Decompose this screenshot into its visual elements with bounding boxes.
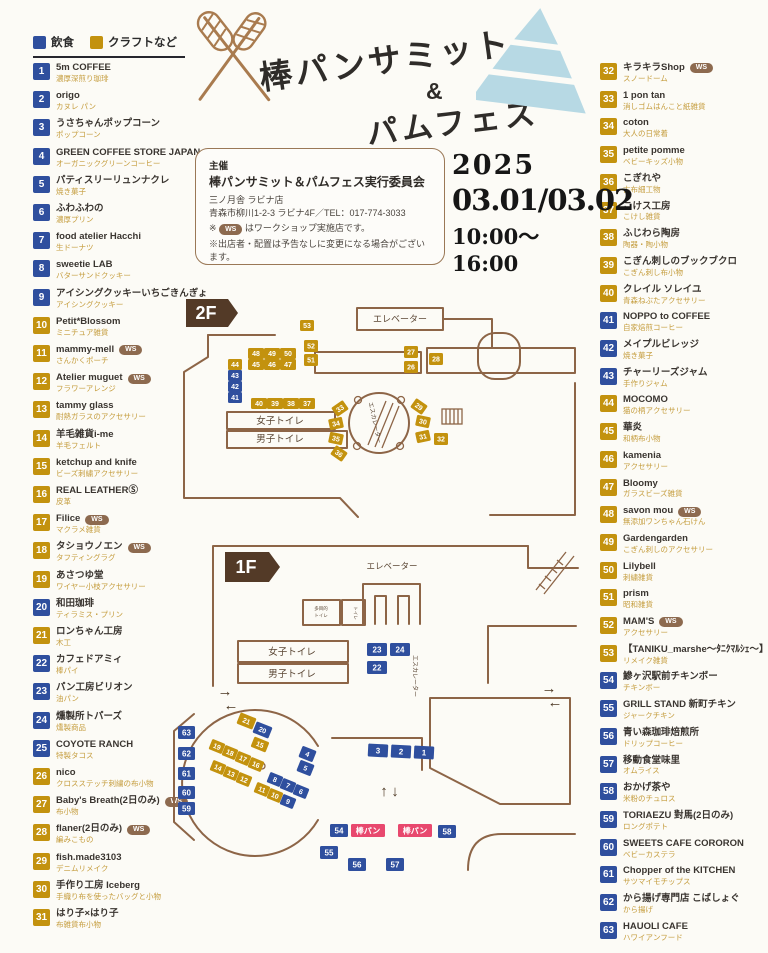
vendor-name: チャーリーズジャム bbox=[623, 368, 707, 379]
vendor-name: 手作り工房 Iceberg bbox=[56, 881, 140, 892]
vendor-name: Baby's Breath(2日のみ) bbox=[56, 796, 160, 807]
vendor-text: あさつゆ堂ワイヤー小枝アクセサリー bbox=[56, 571, 146, 592]
vendor-text: HAUOLI CAFEハワイアンフード bbox=[623, 922, 688, 943]
vendor-item: 52MAM'SWSアクセサリー bbox=[600, 617, 683, 638]
map-booth: 39 bbox=[267, 398, 283, 409]
vendor-text: GREEN COFFEE STORE JAPANオーガニックグリーンコーヒー bbox=[56, 148, 200, 169]
svg-text:51: 51 bbox=[307, 358, 315, 365]
svg-text:61: 61 bbox=[182, 769, 191, 778]
vendor-item: 14羊毛雑貨i-me羊毛フェルト bbox=[33, 430, 114, 451]
vendor-item: 10Petit*Blossomミニチュア雑貨 bbox=[33, 317, 120, 338]
vendor-category: 布雑貨布小物 bbox=[56, 921, 119, 930]
ws-badge: WS bbox=[219, 224, 242, 235]
vendor-number: 9 bbox=[33, 289, 50, 306]
organizer-name: 棒パンサミット＆パムフェス実行委員会 bbox=[209, 173, 431, 190]
vendor-text: 和田珈琲ティラミス・プリン bbox=[56, 599, 123, 620]
vendor-number: 30 bbox=[33, 881, 50, 898]
map-booth: 26 bbox=[404, 361, 418, 373]
vendor-name: パティスリーリュンナクレ bbox=[56, 176, 169, 187]
vendor-text: SWEETS CAFE CORORONベビーカステラ bbox=[623, 839, 744, 860]
vendor-text: ふじわら陶房陶器・陶小物 bbox=[623, 229, 680, 250]
vendor-name: 燻製所トパーズ bbox=[56, 712, 122, 723]
vendor-text: こぎん刺しのブックブクロこぎん刺し布小物 bbox=[623, 257, 737, 278]
ws-badge: WS bbox=[690, 63, 713, 73]
vendor-number: 33 bbox=[600, 91, 617, 108]
svg-text:45: 45 bbox=[252, 362, 260, 369]
map-booth: 56 bbox=[348, 858, 366, 871]
map-booth: 57 bbox=[386, 858, 404, 871]
vendor-category: ポップコーン bbox=[56, 131, 160, 140]
vendor-number: 7 bbox=[33, 232, 50, 249]
vendor-number: 56 bbox=[600, 728, 617, 745]
vendor-name: savon mou bbox=[623, 506, 673, 517]
vendor-text: Petit*Blossomミニチュア雑貨 bbox=[56, 317, 120, 338]
svg-text:棒パン: 棒パン bbox=[403, 825, 427, 835]
map-label: トイレ bbox=[314, 613, 328, 618]
vendor-item: 38ふじわら陶房陶器・陶小物 bbox=[600, 229, 680, 250]
ws-badge: WS bbox=[128, 543, 151, 553]
vendor-name: あさつゆ堂 bbox=[56, 571, 104, 582]
vendor-name: クレイル ソレイユ bbox=[623, 285, 701, 296]
map-booth: 53 bbox=[300, 320, 314, 331]
map-booth: 54 bbox=[330, 824, 348, 837]
vendor-name: TORIAEZU 對馬(2日のみ) bbox=[623, 811, 733, 822]
vendor-item: 5パティスリーリュンナクレ焼き菓子 bbox=[33, 176, 169, 197]
vendor-number: 54 bbox=[600, 672, 617, 689]
vendor-item: 32キラキラShopWSスノードーム bbox=[600, 63, 713, 84]
vendor-name: 1 pon tan bbox=[623, 91, 665, 102]
vendor-item: 16REAL LEATHERⓈ皮革 bbox=[33, 486, 138, 507]
vendor-number: 3 bbox=[33, 119, 50, 136]
vendor-text: 1 pon tan消しゴムはんこと紙雑貨 bbox=[623, 91, 706, 112]
vendor-text: 青い森珈琲焙煎所ドリップコーヒー bbox=[623, 728, 699, 749]
ws-badge: WS bbox=[127, 825, 150, 835]
organizer-heading: 主催 bbox=[209, 158, 431, 172]
vendor-number: 61 bbox=[600, 866, 617, 883]
direction-arrow: ← bbox=[224, 697, 239, 714]
vendor-category: ミニチュア雑貨 bbox=[56, 329, 120, 338]
stairs-icon-2f bbox=[442, 409, 462, 424]
vendor-number: 60 bbox=[600, 839, 617, 856]
vendor-name: タショウノエン bbox=[56, 542, 123, 553]
svg-text:43: 43 bbox=[231, 373, 239, 380]
vendor-number: 25 bbox=[33, 740, 50, 757]
map-booth: 27 bbox=[404, 346, 418, 358]
map-label: トイレ bbox=[353, 606, 358, 620]
vendor-item: 4GREEN COFFEE STORE JAPANオーガニックグリーンコーヒー bbox=[33, 148, 200, 169]
vendor-number: 24 bbox=[33, 712, 50, 729]
vendor-number: 51 bbox=[600, 589, 617, 606]
vendor-number: 12 bbox=[33, 373, 50, 390]
vendor-number: 11 bbox=[33, 345, 50, 362]
vendor-category: アクセサリー bbox=[623, 463, 668, 472]
vendor-text: 移動食堂味里オムライス bbox=[623, 756, 680, 777]
vendor-text: パン工房ビリオン油パン bbox=[56, 683, 132, 704]
map-booth: 55 bbox=[320, 846, 338, 859]
vendor-number: 62 bbox=[600, 894, 617, 911]
vendor-item: 63HAUOLI CAFEハワイアンフード bbox=[600, 922, 688, 943]
labels-1f: エレベーター多目的トイレトイレ女子トイレ男子トイレエスカレーター→←→←↑↓ bbox=[218, 561, 563, 800]
vendor-item: 8sweetie LABバターサンドクッキー bbox=[33, 260, 131, 281]
vendor-name: こぎん刺しのブックブクロ bbox=[623, 257, 737, 268]
vendor-category: タフティングラグ bbox=[56, 554, 151, 563]
vendor-name: Gardengarden bbox=[623, 534, 688, 545]
map-booth: 59 bbox=[178, 802, 195, 815]
vendor-text: prism昭和雑貨 bbox=[623, 589, 653, 610]
map-label: 女子トイレ bbox=[268, 646, 316, 658]
vendor-number: 19 bbox=[33, 571, 50, 588]
vendor-item: 49Gardengardenこぎん刺しのアクセサリー bbox=[600, 534, 713, 555]
vendor-item: 17FiliceWSマクラメ雑貨 bbox=[33, 514, 109, 535]
vendor-item: 35petite pommeベビーキッズ小物 bbox=[600, 146, 685, 167]
floor-tag-2f: 2F bbox=[186, 299, 238, 327]
vendor-category: 編みこもの bbox=[56, 836, 150, 845]
vendor-text: REAL LEATHERⓈ皮革 bbox=[56, 486, 138, 507]
map-booth: 1 bbox=[414, 745, 435, 759]
vendor-item: 7food atelier Hacchi生ドーナツ bbox=[33, 232, 141, 253]
map-booth: 42 bbox=[228, 381, 242, 392]
vendor-number: 18 bbox=[33, 542, 50, 559]
vendor-text: fish.made3103デニムリメイク bbox=[56, 853, 121, 874]
change-note: ※出店者・配置は予告なしに変更になる場合がございます。 bbox=[209, 238, 431, 262]
map-label: 男子トイレ bbox=[256, 434, 304, 445]
map-booth: 15 bbox=[251, 736, 270, 752]
vendor-name: fish.made3103 bbox=[56, 853, 121, 864]
vendor-category: マクラメ雑貨 bbox=[56, 526, 109, 535]
pyramid-logo bbox=[476, 2, 596, 117]
vendor-category: 羊毛フェルト bbox=[56, 442, 114, 451]
vendor-text: パティスリーリュンナクレ焼き菓子 bbox=[56, 176, 169, 197]
vendor-category: サツマイモチップス bbox=[623, 878, 735, 887]
vendor-category: ベビーキッズ小物 bbox=[623, 158, 685, 167]
vendor-category: 生ドーナツ bbox=[56, 244, 141, 253]
legend-item: 飲食 bbox=[33, 34, 74, 50]
vendor-text: origoカヌレ パン bbox=[56, 91, 96, 112]
vendor-text: TORIAEZU 對馬(2日のみ)ロングポテト bbox=[623, 811, 733, 832]
vendor-category: ワイヤー小枝アクセサリー bbox=[56, 583, 146, 592]
map-booth: 29 bbox=[410, 398, 428, 415]
vendor-number: 42 bbox=[600, 340, 617, 357]
map-label: エレベーター bbox=[373, 314, 427, 324]
vendor-category: こぎん刺しのアクセサリー bbox=[623, 546, 713, 555]
vendor-number: 6 bbox=[33, 204, 50, 221]
svg-text:22: 22 bbox=[373, 663, 382, 672]
map-booth: 31 bbox=[415, 430, 431, 444]
vendor-category: 焼き菓子 bbox=[623, 352, 699, 361]
ws-badge: WS bbox=[119, 345, 142, 355]
vendor-text: 手作り工房 Iceberg手織り布を使ったバッグと小物 bbox=[56, 881, 161, 902]
vendor-category: デニムリメイク bbox=[56, 865, 121, 874]
map-booth: 5 bbox=[296, 760, 314, 777]
vendor-item: 48savon mouWS無添加ワンちゃん石けん bbox=[600, 506, 706, 527]
map-booth: 22 bbox=[367, 661, 387, 674]
vendor-category: バターサンドクッキー bbox=[56, 272, 131, 281]
vendor-number: 15 bbox=[33, 458, 50, 475]
map-booth: 44 bbox=[228, 359, 242, 370]
map-booth: 3 bbox=[368, 743, 389, 757]
vendor-category: さんかくポーチ bbox=[56, 357, 142, 366]
vendor-number: 21 bbox=[33, 627, 50, 644]
vendor-number: 14 bbox=[33, 430, 50, 447]
vendor-number: 55 bbox=[600, 700, 617, 717]
vendor-category: 米粉のチュロス bbox=[623, 795, 676, 804]
vendor-text: うさちゃんポップコーンポップコーン bbox=[56, 119, 160, 140]
vendor-name: GRILL STAND 新町チキン bbox=[623, 700, 736, 711]
vendor-category: 昭和雑貨 bbox=[623, 601, 653, 610]
map-booth: 24 bbox=[390, 643, 410, 656]
vendor-number: 46 bbox=[600, 451, 617, 468]
title-block: 棒パンサミット & パムフェス bbox=[188, 0, 590, 145]
legend-swatch-craft bbox=[90, 36, 103, 49]
vendor-item: 57移動食堂味里オムライス bbox=[600, 756, 680, 777]
map-booth: 50 bbox=[280, 348, 296, 359]
map-booth: 28 bbox=[429, 353, 443, 365]
vendor-number: 49 bbox=[600, 534, 617, 551]
vendor-category: クロスステッチ刺繍の布小物 bbox=[56, 780, 154, 789]
vendor-item: 30手作り工房 Iceberg手織り布を使ったバッグと小物 bbox=[33, 881, 161, 902]
vendor-category: 猫の柄アクセサリー bbox=[623, 407, 691, 416]
vendor-item: 42メイプルビレッジ焼き菓子 bbox=[600, 340, 699, 361]
map-booth: 46 bbox=[264, 359, 280, 370]
vendor-item: 51prism昭和雑貨 bbox=[600, 589, 653, 610]
map-booth: 63 bbox=[178, 726, 195, 739]
vendor-category: 消しゴムはんこと紙雑貨 bbox=[623, 103, 706, 112]
vendor-item: 23パン工房ビリオン油パン bbox=[33, 683, 132, 704]
vendor-text: Baby's Breath(2日のみ)WS布小物 bbox=[56, 796, 188, 817]
vendor-item: 12Atelier muguetWSフラワーアレンジ bbox=[33, 373, 151, 394]
svg-text:32: 32 bbox=[437, 437, 445, 444]
svg-text:棒パン: 棒パン bbox=[356, 825, 380, 835]
vendor-category: 特製タコス bbox=[56, 752, 133, 761]
vendor-name: から揚げ専門店 こばしょぐ bbox=[623, 894, 740, 905]
vendor-name: 5m COFFEE bbox=[56, 63, 111, 74]
ws-badge: WS bbox=[85, 515, 108, 525]
vendor-name: おかげ茶や bbox=[623, 783, 671, 794]
vendor-name: 羊毛雑貨i-me bbox=[56, 430, 114, 441]
map-booth: 43 bbox=[228, 370, 242, 381]
map-booth: 34 bbox=[328, 417, 344, 431]
vendor-number: 59 bbox=[600, 811, 617, 828]
vendor-text: キラキラShopWSスノードーム bbox=[623, 63, 713, 84]
svg-text:54: 54 bbox=[335, 826, 344, 835]
vendor-item: 15ketchup and knifeビーズ刺繍アクセサリー bbox=[33, 458, 138, 479]
vendor-item: 331 pon tan消しゴムはんこと紙雑貨 bbox=[600, 91, 706, 112]
map-booth: 58 bbox=[438, 825, 456, 838]
event-dates: 03.01/03.02 bbox=[452, 183, 588, 217]
vendor-number: 2 bbox=[33, 91, 50, 108]
legend-underline bbox=[33, 56, 185, 58]
vendor-text: sweetie LABバターサンドクッキー bbox=[56, 260, 131, 281]
vendor-category: 木工 bbox=[56, 639, 123, 648]
vendor-category: 手作りジャム bbox=[623, 380, 707, 389]
vendor-text: タショウノエンWSタフティングラグ bbox=[56, 542, 151, 563]
svg-text:52: 52 bbox=[307, 344, 315, 351]
map-booth: 21 bbox=[236, 712, 256, 729]
vendor-text: はり子×はり子布雑貨布小物 bbox=[56, 909, 119, 930]
vendor-number: 48 bbox=[600, 506, 617, 523]
vendor-name: メイプルビレッジ bbox=[623, 340, 699, 351]
vendor-item: 21ロンちゃん工房木工 bbox=[33, 627, 123, 648]
vendor-item: 6ふわふわの濃厚プリン bbox=[33, 204, 104, 225]
svg-text:42: 42 bbox=[231, 384, 239, 391]
map-label: エレベーター bbox=[366, 561, 417, 571]
svg-text:37: 37 bbox=[303, 401, 311, 408]
vendor-category: こぎん刺し布小物 bbox=[623, 269, 737, 278]
vendor-number: 27 bbox=[33, 796, 50, 813]
vendor-text: ketchup and knifeビーズ刺繍アクセサリー bbox=[56, 458, 138, 479]
vendor-number: 63 bbox=[600, 922, 617, 939]
vendor-number: 16 bbox=[33, 486, 50, 503]
vendor-number: 52 bbox=[600, 617, 617, 634]
vendor-category: 棒パイ bbox=[56, 667, 123, 676]
vendor-number: 53 bbox=[600, 645, 617, 662]
vendor-category: 手織り布を使ったバッグと小物 bbox=[56, 893, 161, 902]
vendor-category: 濃厚プリン bbox=[56, 216, 104, 225]
ws-badge: WS bbox=[659, 617, 682, 627]
vendor-text: 羊毛雑貨i-me羊毛フェルト bbox=[56, 430, 114, 451]
map-booth: 45 bbox=[248, 359, 264, 370]
vendor-item: 29fish.made3103デニムリメイク bbox=[33, 853, 121, 874]
vendor-name: キラキラShop bbox=[623, 63, 685, 74]
map-booth: 38 bbox=[283, 398, 299, 409]
vendor-text: メイプルビレッジ焼き菓子 bbox=[623, 340, 699, 361]
vendor-name: mammy-mell bbox=[56, 345, 114, 356]
vendor-item: 62から揚げ専門店 こばしょぐから揚げ bbox=[600, 894, 740, 915]
vendor-number: 44 bbox=[600, 395, 617, 412]
svg-text:26: 26 bbox=[407, 365, 415, 372]
vendor-number: 47 bbox=[600, 479, 617, 496]
vendor-name: prism bbox=[623, 589, 649, 600]
legend-swatch-food bbox=[33, 36, 46, 49]
vendor-number: 45 bbox=[600, 423, 617, 440]
vendor-category: 耐熱ガラスのアクセサリー bbox=[56, 413, 146, 422]
vendor-number: 13 bbox=[33, 401, 50, 418]
vendor-item: 24燻製所トパーズ燻製商品 bbox=[33, 712, 122, 733]
vendor-text: FiliceWSマクラメ雑貨 bbox=[56, 514, 109, 535]
vendor-number: 38 bbox=[600, 229, 617, 246]
vendor-text: petite pommeベビーキッズ小物 bbox=[623, 146, 685, 167]
vendor-text: kameniaアクセサリー bbox=[623, 451, 668, 472]
vendor-text: flaner(2日のみ)WS編みこもの bbox=[56, 824, 150, 845]
svg-text:59: 59 bbox=[182, 804, 191, 813]
vendor-category: 和柄布小物 bbox=[623, 435, 661, 444]
escalator-1f-top bbox=[536, 552, 574, 594]
map-booth: 52 bbox=[304, 340, 318, 352]
vendor-number: 22 bbox=[33, 655, 50, 672]
vendor-item: 3うさちゃんポップコーンポップコーン bbox=[33, 119, 160, 140]
floor-label-1f: 1F bbox=[235, 557, 256, 577]
legend-label: 飲食 bbox=[51, 34, 74, 50]
svg-text:49: 49 bbox=[268, 351, 276, 358]
vendor-text: savon mouWS無添加ワンちゃん石けん bbox=[623, 506, 706, 527]
vendor-text: Chopper of the KITCHENサツマイモチップス bbox=[623, 866, 735, 887]
event-time: 10:00～16:00 bbox=[452, 221, 588, 276]
svg-text:50: 50 bbox=[284, 351, 292, 358]
map-booth: 37 bbox=[299, 398, 315, 409]
map-booth: 49 bbox=[264, 348, 280, 359]
vendor-number: 34 bbox=[600, 118, 617, 135]
svg-text:53: 53 bbox=[303, 323, 311, 330]
vendor-name: nico bbox=[56, 768, 76, 779]
vendor-text: mammy-mellWSさんかくポーチ bbox=[56, 345, 142, 366]
vendor-item: 40クレイル ソレイユ青森ねぶたアクセサリー bbox=[600, 285, 706, 306]
map-booth: 62 bbox=[178, 747, 195, 760]
svg-text:60: 60 bbox=[182, 788, 191, 797]
floor-map-2f: 2F 5352514849504546474443424140393837272… bbox=[180, 293, 580, 525]
floor-map-1f: 1F 2324222120151918171614131211109876453… bbox=[170, 538, 582, 910]
svg-text:63: 63 bbox=[182, 728, 191, 737]
svg-text:48: 48 bbox=[252, 351, 260, 358]
map-booth: 41 bbox=[228, 392, 242, 403]
direction-arrow: ↑ bbox=[380, 783, 388, 800]
vendor-category: 刺繍雑貨 bbox=[623, 574, 656, 583]
vendor-name: 華炎 bbox=[623, 423, 642, 434]
vendor-item: 53【TANIKU_marshe～ﾀﾆｸﾏﾙｼｪ～】(2日のみ)リメイク雑貨 bbox=[600, 645, 768, 666]
map-booth: 棒パン bbox=[351, 824, 385, 837]
vendor-item: 55GRILL STAND 新町チキンジャークチキン bbox=[600, 700, 736, 721]
direction-arrow: ← bbox=[548, 694, 563, 711]
vendor-name: food atelier Hacchi bbox=[56, 232, 141, 243]
vendor-item: 39こぎん刺しのブックブクロこぎん刺し布小物 bbox=[600, 257, 737, 278]
vendor-name: sweetie LAB bbox=[56, 260, 113, 271]
map-booth: 47 bbox=[280, 359, 296, 370]
vendor-text: ふわふわの濃厚プリン bbox=[56, 204, 104, 225]
vendor-item: 61Chopper of the KITCHENサツマイモチップス bbox=[600, 866, 735, 887]
vendor-category: アクセサリー bbox=[623, 629, 683, 638]
vendor-category: ガラスビーズ雑貨 bbox=[623, 490, 682, 499]
map-booth: 48 bbox=[248, 348, 264, 359]
organizer-address: 青森市柳川1-2-3 ラビナ4F／TEL：017-774-3033 bbox=[209, 206, 431, 219]
vendor-text: nicoクロスステッチ刺繍の布小物 bbox=[56, 768, 154, 789]
vendor-name: HAUOLI CAFE bbox=[623, 922, 688, 933]
flyer: { "colors":{"food":"#2f4f9e","craft":"#c… bbox=[0, 0, 768, 953]
vendor-category: から揚げ bbox=[623, 906, 740, 915]
map-booth: 35 bbox=[328, 432, 344, 446]
vendor-item: 47Bloomyガラスビーズ雑貨 bbox=[600, 479, 682, 500]
vendor-category: ロングポテト bbox=[623, 823, 733, 832]
map-label: 多目的 bbox=[314, 605, 328, 612]
organizer-venue: 三ノ月舎 ラビナ店 bbox=[209, 193, 431, 206]
vendor-number: 8 bbox=[33, 260, 50, 277]
vendor-category: ティラミス・プリン bbox=[56, 611, 123, 620]
vendor-category: オムライス bbox=[623, 767, 680, 776]
vendor-text: MAM'SWSアクセサリー bbox=[623, 617, 683, 638]
vendor-item: 13tammy glass耐熱ガラスのアクセサリー bbox=[33, 401, 146, 422]
vendor-text: Bloomyガラスビーズ雑貨 bbox=[623, 479, 682, 500]
vendor-name: Chopper of the KITCHEN bbox=[623, 866, 735, 877]
vendor-number: 35 bbox=[600, 146, 617, 163]
svg-text:56: 56 bbox=[353, 860, 362, 869]
vendor-name: Lilybell bbox=[623, 562, 656, 573]
vendor-number: 28 bbox=[33, 824, 50, 841]
vendor-name: coton bbox=[623, 118, 649, 129]
ws-badge: WS bbox=[678, 507, 701, 517]
vendor-category: 燻製商品 bbox=[56, 724, 122, 733]
vendor-name: カフェドアミィ bbox=[56, 655, 123, 666]
floor-tag-1f: 1F bbox=[225, 552, 280, 582]
vendor-name: ketchup and knife bbox=[56, 458, 137, 469]
event-year: 2025 bbox=[452, 150, 588, 181]
vendor-number: 29 bbox=[33, 853, 50, 870]
vendor-item: 27Baby's Breath(2日のみ)WS布小物 bbox=[33, 796, 188, 817]
vendor-number: 50 bbox=[600, 562, 617, 579]
vendor-name: flaner(2日のみ) bbox=[56, 824, 122, 835]
vendor-name: petite pomme bbox=[623, 146, 685, 157]
vendor-name: REAL LEATHERⓈ bbox=[56, 486, 138, 497]
vendor-text: food atelier Hacchi生ドーナツ bbox=[56, 232, 141, 253]
vendor-category: チキンボー bbox=[623, 684, 718, 693]
vendor-text: ロンちゃん工房木工 bbox=[56, 627, 123, 648]
